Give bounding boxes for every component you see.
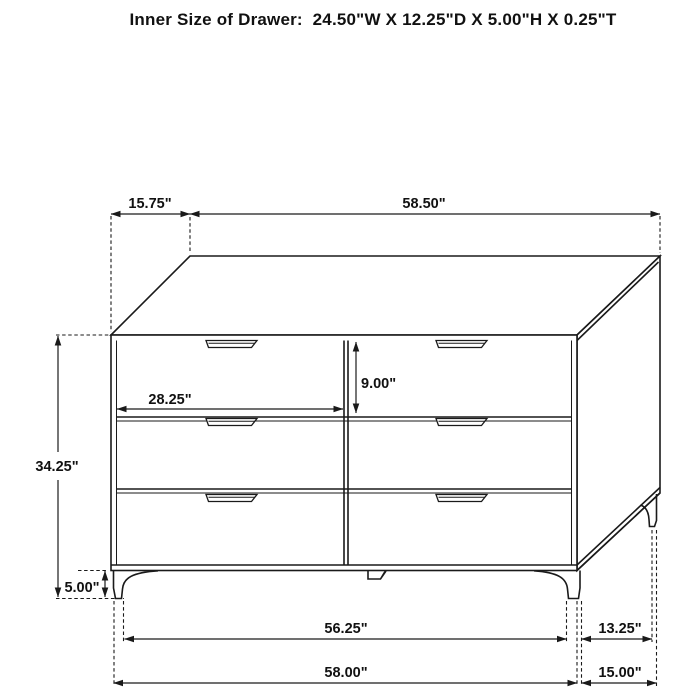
dim-label-side-leg-span: 13.25" [598,621,641,637]
dresser-drawing [111,256,660,599]
dim-label-overall-height: 34.25" [35,459,78,475]
dresser-top-surface [111,256,660,335]
front-right-leg [534,571,580,599]
dim-label-overall-depth: 15.00" [598,665,641,681]
dresser-dimension-diagram: 15.75" 58.50" 34.25" 28.25" 9.00" 5.00" … [0,0,700,700]
dim-label-overall-width: 58.00" [324,665,367,681]
front-left-leg [114,571,159,599]
dim-label-top-offset: 15.75" [128,196,171,212]
dim-label-leg-height: 5.00" [64,580,99,596]
diagram-page: Inner Size of Drawer: 24.50"W X 12.25"D … [0,0,700,700]
dim-label-drawer-height: 9.00" [361,376,396,392]
back-left-foot [368,571,386,580]
dim-label-drawer-width: 28.25" [148,392,191,408]
dim-label-top-width: 58.50" [402,196,445,212]
dim-label-front-leg-span: 56.25" [324,621,367,637]
